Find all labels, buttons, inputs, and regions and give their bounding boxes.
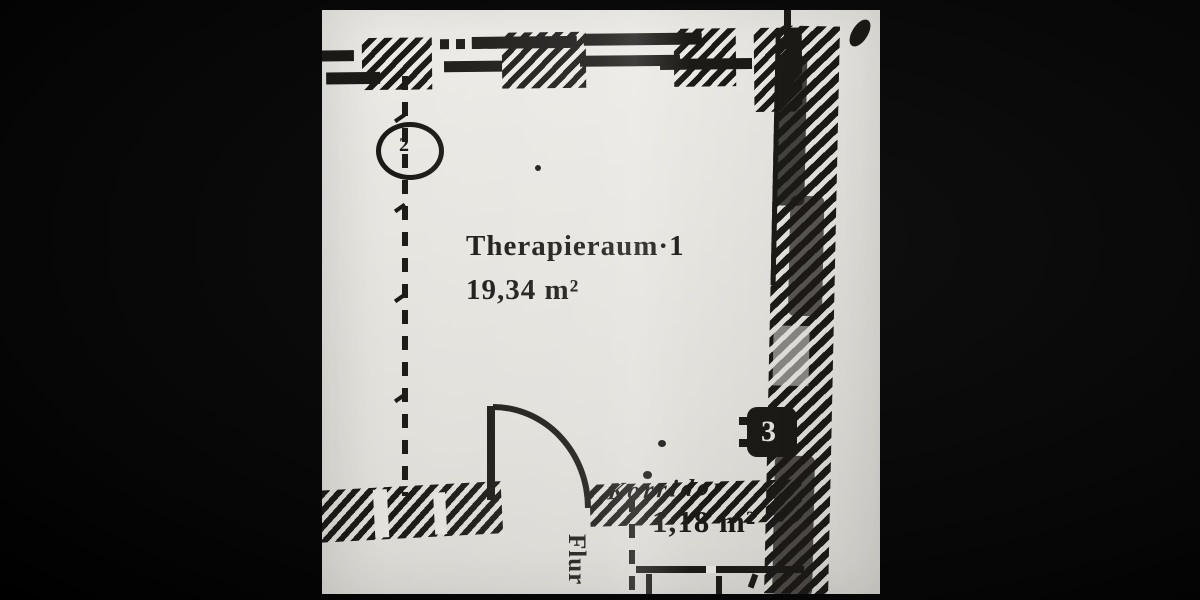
area-label-korridor: 1,18 m² [652,504,756,540]
wall-dash [444,61,502,73]
door-swing-arc [493,404,591,508]
flur-label: Flur [562,534,590,585]
korridor-label: Korridor [606,474,728,506]
area-label-therapieraum: 19,34 m² [466,274,579,307]
junction-box-notch [739,417,749,425]
wall-dash [660,58,752,70]
junction-box-glyph: 3 [761,415,776,449]
korridor-tick [646,574,652,594]
wall-faded-patch [433,492,447,535]
wall-faded-patch [373,489,389,538]
wall-ink-blotch [774,55,807,206]
oval-marker-glyph: 2 [399,134,410,157]
korridor-bottom-line [636,566,804,573]
wall-top [322,27,802,96]
wall-dash [472,36,577,49]
wall-ink-blotch [772,455,815,594]
oval-marker-symbol: 2 [376,122,444,180]
floorplan-photo: 2 Therapieraum·1 19,34 m² Korridor 1,18 … [0,0,1200,600]
korridor-left-edge [629,498,635,594]
wall-dash [322,50,354,61]
stray-mark [846,16,873,50]
paper-speck [658,440,666,447]
flur-label-wrapper: Flur [562,534,594,594]
floorplan-paper: 2 Therapieraum·1 19,34 m² Korridor 1,18 … [322,10,880,594]
wall-ink-blotch [788,196,825,317]
wall-bottom-left [322,481,503,543]
junction-box-symbol: 3 [747,407,797,457]
wall-faded-patch [772,325,809,386]
wall-hatch-segment [362,37,433,90]
line-gap [706,566,716,573]
korridor-tick [716,576,722,594]
paper-speck [643,471,652,479]
paper-speck [535,165,541,171]
room-label-therapieraum: Therapieraum·1 [466,230,685,263]
junction-box-notch [739,439,749,447]
korridor-tick [748,573,758,588]
